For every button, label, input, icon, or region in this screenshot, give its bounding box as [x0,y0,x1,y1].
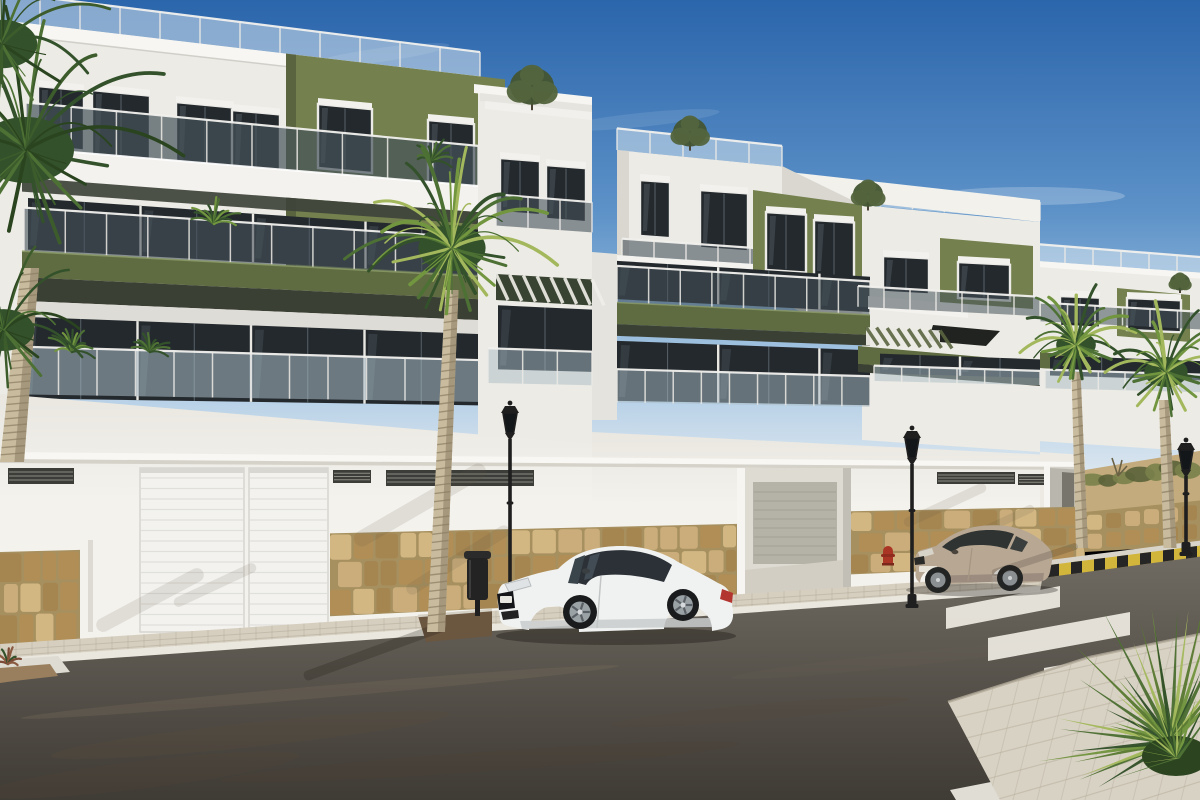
lamp-plinth-base [906,604,919,608]
stone-block [700,526,720,548]
stone-block [660,527,677,550]
stone-block [1039,509,1055,526]
stone-block [400,533,416,558]
stone-block [851,512,871,531]
garage-door [140,468,244,632]
hub-cap [936,578,940,582]
side-mirror [582,568,590,573]
stone-block [20,614,34,642]
distant-structure [592,252,617,420]
lamp-glass [503,413,517,433]
stone-block [59,552,79,580]
stone-block [859,533,882,552]
stone-block [723,525,736,547]
stone-block [330,590,351,615]
side-mirror [952,550,959,554]
stone-block [1106,532,1121,547]
stone-block [1087,534,1102,549]
roof-tree-foliage [1175,272,1186,281]
hazard-curb-black [1071,561,1082,574]
lamp-plinth-base [1180,552,1193,556]
glass-balustrade [488,348,592,385]
stone-block [1144,528,1159,543]
stone-block [381,561,397,586]
stone-block [364,561,378,586]
roof-tree-foliage [681,116,700,132]
hazard-curb-black [1140,552,1151,565]
stone-block [874,512,894,530]
stone-block [1125,530,1140,545]
ramp-side-pillar [737,468,745,606]
lamp-glass [1179,450,1193,470]
hub-cap [577,609,582,614]
lamp-finial [508,401,513,406]
lamp-post-ring [507,502,514,505]
lamp-finial [910,426,915,431]
lamp-finial [1184,438,1189,443]
stone-block [558,529,582,552]
garage-door-header [140,468,244,473]
license-plate [500,596,512,603]
stone-block [0,615,17,644]
stone-block [330,535,351,560]
stone-block [61,582,78,610]
inner-garage-door [753,482,837,564]
stone-block [36,614,54,642]
stone-block [419,532,433,557]
stone-block [56,613,76,641]
stone-block [913,532,928,550]
downpipe [88,540,93,632]
stone-block [680,526,698,548]
architectural-render-image [0,0,1200,800]
scene-svg [0,0,1200,800]
lamp-post-ring [1183,492,1190,495]
stone-block [24,553,40,581]
lamp-post-ring [909,509,916,512]
stone-block [43,583,58,611]
hazard-curb-black [1163,549,1174,562]
stone-block [4,584,18,613]
stone-block [377,588,391,613]
ramp-side-shadow [843,468,851,601]
roof-tree-foliage [860,179,877,193]
stone-block [1144,509,1159,524]
stone-block [0,553,21,582]
stone-block [1125,511,1140,526]
stone-block [1087,515,1102,530]
stone-block [43,552,56,580]
hub-cap [680,602,685,607]
lamp-post [910,464,914,608]
fire-hydrant-caps [881,554,895,557]
lamp-plinth [1182,542,1191,553]
stone-block [532,530,555,554]
garage-door-header [249,468,328,473]
fire-hydrant-base [882,563,894,566]
stone-block [709,550,724,572]
stone-block [851,555,868,574]
lamp-glass [905,438,919,458]
stone-block [20,583,40,611]
hazard-curb-black [1094,558,1105,571]
stone-block [944,511,970,529]
hub-cap [1008,576,1012,580]
hazard-curb-black [1117,555,1128,568]
lamp-plinth [908,594,917,605]
stone-block [353,589,374,614]
stone-block [509,530,530,554]
bin-lid [464,551,491,559]
bin-post [475,598,480,616]
stone-block [338,562,362,587]
stone-block [1106,513,1121,528]
stone-block [1043,528,1066,545]
stone-block [644,527,658,550]
roof-tree-foliage [520,65,544,86]
tower-facade [478,86,592,445]
stone-block [726,550,736,572]
